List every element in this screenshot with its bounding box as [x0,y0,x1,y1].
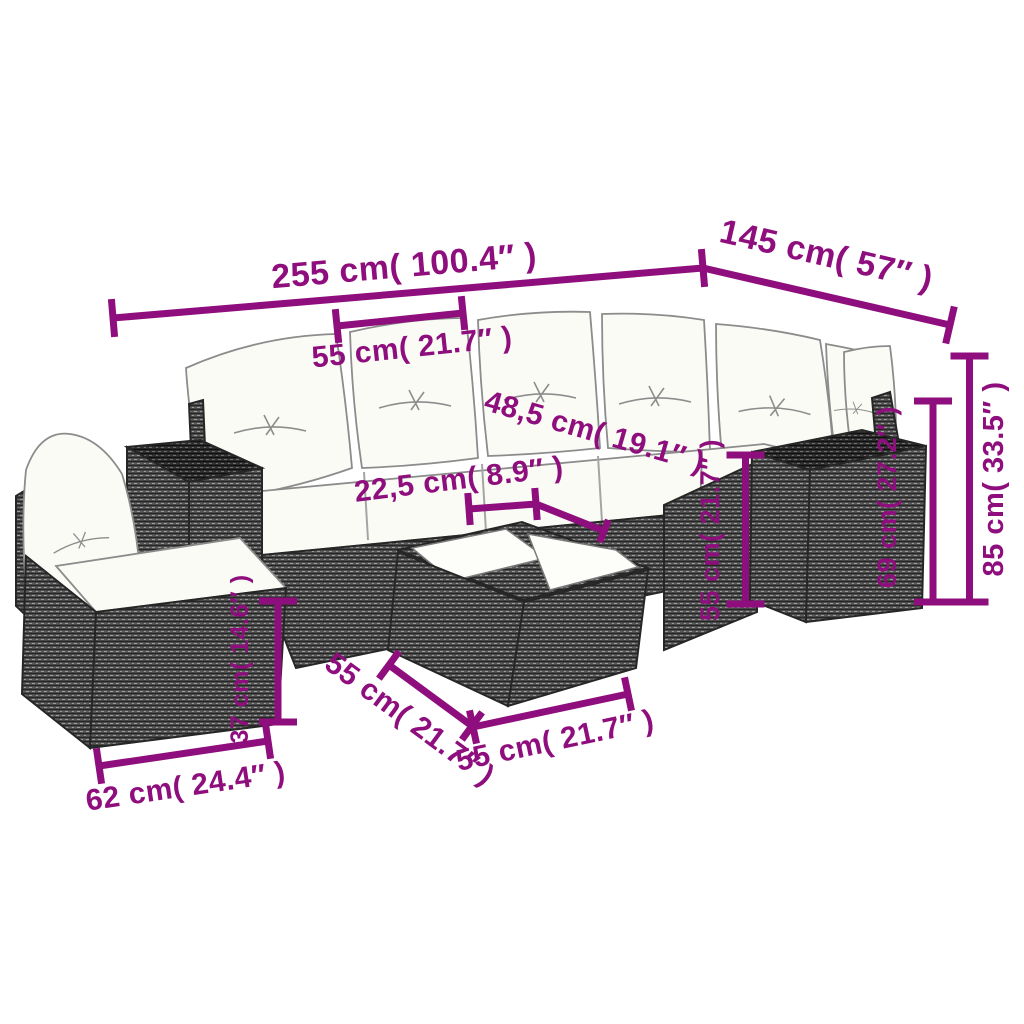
dim-label-55-corner: 55 cm( 21.7″ ) [695,439,725,621]
dim-label-37: 37 cm( 14.6″ ) [226,574,254,743]
product-dimension-diagram: 255 cm( 100.4″ ) 145 cm( 57″ ) 55 cm( 21… [0,0,1024,1024]
sofa-set-diagram-canvas: 255 cm( 100.4″ ) 145 cm( 57″ ) 55 cm( 21… [0,0,1024,1024]
coffee-table [388,522,648,706]
right-armrest-front-face [806,446,926,622]
chair-base-front-face [90,588,286,748]
right-armrest-left-face [750,452,810,622]
rattan-sofa-set-illustration [16,312,926,748]
dim-label-85: 85 cm( 33.5″ ) [978,382,1010,577]
dim-label-145: 145 cm( 57″ ) [716,212,936,298]
dim-label-69: 69 cm( 27.2″ ) [872,406,902,588]
